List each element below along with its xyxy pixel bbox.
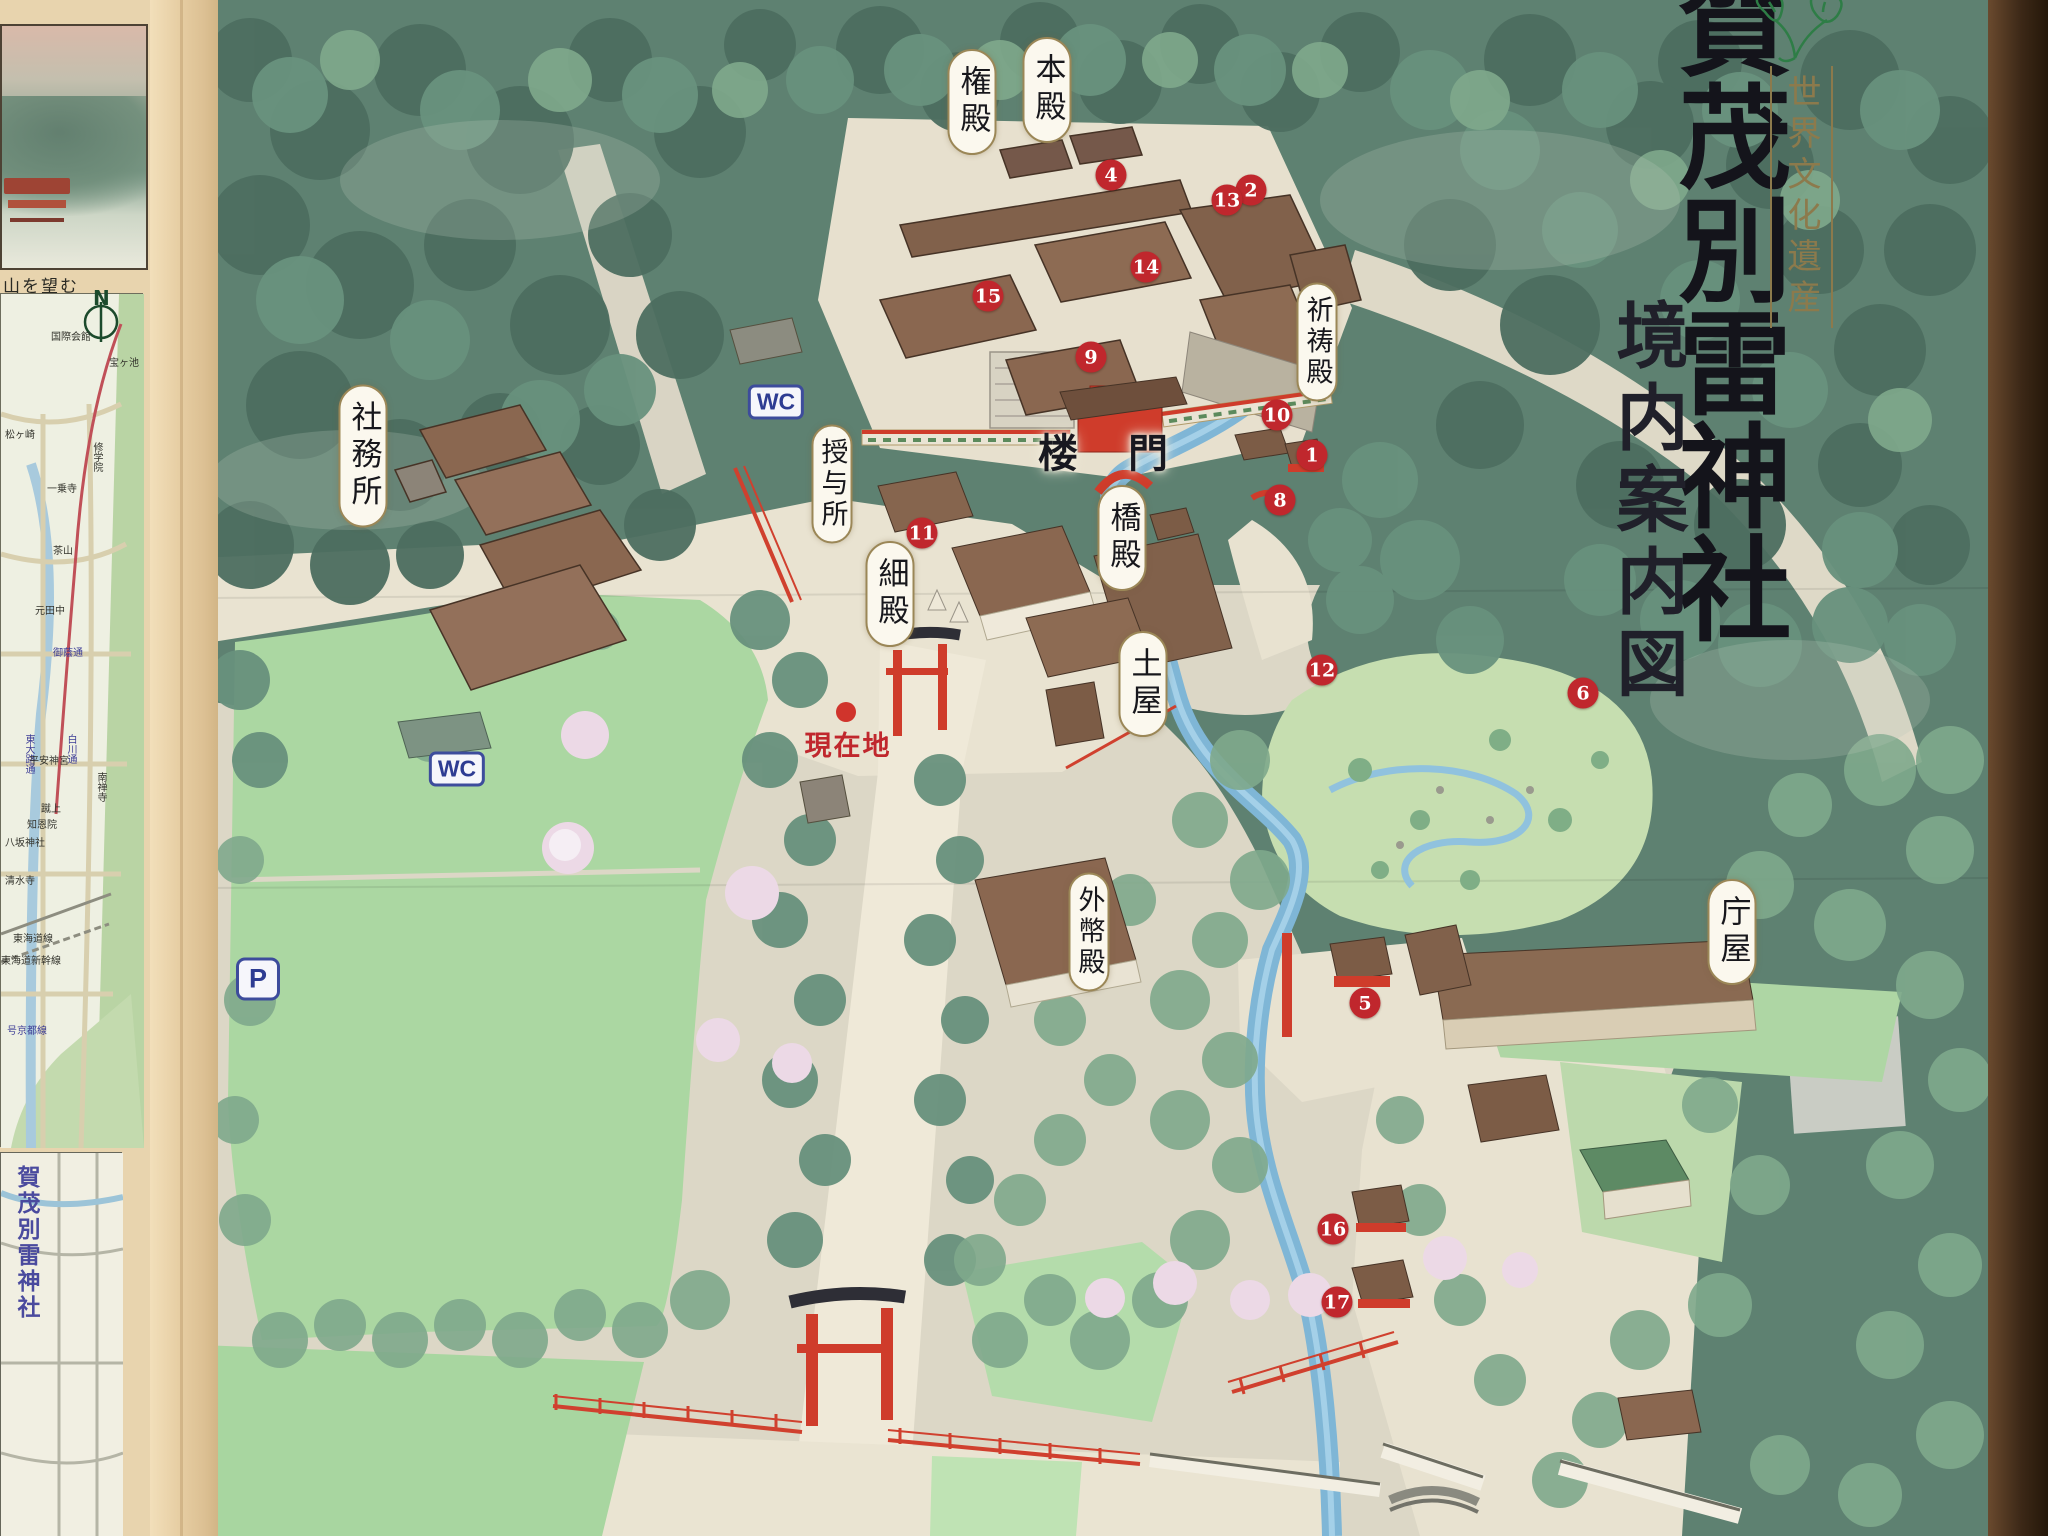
roadmap-label: 元田中 [35, 602, 65, 617]
map-marker-11: 11 [907, 518, 938, 549]
map-marker-13: 13 [1212, 185, 1243, 216]
roadmap-label: 南禅寺 [93, 772, 108, 802]
label-romon: 楼 門 [1038, 421, 1186, 479]
current-location-label: 現在地 [805, 724, 892, 763]
map-title: 境内案内図 [1601, 298, 1685, 708]
sidebar-painting-panel [0, 24, 148, 270]
roadmap-label: 東海道新幹線 [1, 952, 61, 967]
map-marker-14: 14 [1131, 252, 1162, 283]
roadmap-label: 修学院 [89, 442, 104, 472]
current-location-dot [836, 702, 856, 722]
north-indicator: N [93, 286, 110, 310]
roadmap-label: 清水寺 [5, 872, 35, 887]
map-marker-5: 5 [1350, 988, 1381, 1019]
roadmap-label: 御蔭通 [53, 644, 83, 659]
map-marker-6: 6 [1568, 678, 1599, 709]
map-marker-10: 10 [1262, 400, 1293, 431]
parking-badge: P [236, 958, 280, 1001]
label-choya: 庁屋 [1708, 879, 1757, 985]
map-marker-12: 12 [1307, 655, 1338, 686]
map-marker-8: 8 [1265, 485, 1296, 516]
wc-badge-upper: WC [748, 385, 804, 420]
sidebar-roadmap-panel: N 国際会館 宝ヶ池 松ヶ崎 修学院 一乗寺 茶山 元田中 御蔭通 東大路通 白… [0, 293, 143, 1147]
map-marker-4: 4 [1096, 160, 1127, 191]
label-kitoden: 祈祷殿 [1297, 283, 1338, 402]
wc-badge-lower: WC [429, 752, 485, 787]
roadmap-label: 一乗寺 [47, 480, 77, 495]
roadmap-label: 宝ヶ池 [109, 354, 139, 369]
map-marker-9: 9 [1076, 342, 1107, 373]
label-shamusho: 社務所 [339, 385, 388, 528]
label-honden: 本殿 [1023, 37, 1072, 143]
map-marker-16: 16 [1318, 1214, 1349, 1245]
painting-shrine-roof [4, 178, 70, 194]
label-juyosho: 授与所 [812, 425, 853, 544]
label-gaiheiden: 外幣殿 [1069, 873, 1110, 992]
map-marker-15: 15 [973, 281, 1004, 312]
label-hosodono: 細殿 [866, 541, 915, 647]
futaba-aoi-leaf-icon [1735, 0, 1855, 66]
roadmap-label: 国際会館 [51, 328, 91, 343]
roadmap-label: 知恩院 [27, 816, 57, 831]
painting-mountain [0, 96, 148, 216]
roadmap-label: 東海道線 [13, 930, 53, 945]
wood-frame-edge [1988, 0, 2048, 1536]
roadmap-label: 平安神宮 [29, 752, 69, 767]
sidebar-areamap-panel: 賀茂別雷神社 [0, 1152, 122, 1536]
roadmap-label: 号京都線 [7, 1022, 47, 1037]
label-hashidono: 橋殿 [1098, 485, 1147, 591]
roadmap-lines [1, 294, 144, 1148]
map-marker-1: 1 [1297, 440, 1328, 471]
roadmap-label: 茶山 [53, 542, 73, 557]
roadmap-label: 蹴上 [41, 800, 61, 815]
roadmap-label: 八坂神社 [5, 834, 45, 849]
wood-frame-strip [150, 0, 218, 1536]
shrine-grounds-signboard: 山を望む N 国際会館 宝ヶ池 松ヶ崎 修学院 一乗寺 茶山 元田中 御蔭通 東… [0, 0, 2048, 1536]
roadmap-label: 松ヶ崎 [5, 426, 35, 441]
areamap-title: 賀茂別雷神社 [9, 1165, 43, 1321]
map-marker-17: 17 [1322, 1287, 1353, 1318]
label-gonden: 権殿 [948, 49, 997, 155]
world-heritage-badge: 世界文化遺産 [1770, 66, 1833, 328]
label-tsuchinoya: 土屋 [1119, 631, 1168, 737]
